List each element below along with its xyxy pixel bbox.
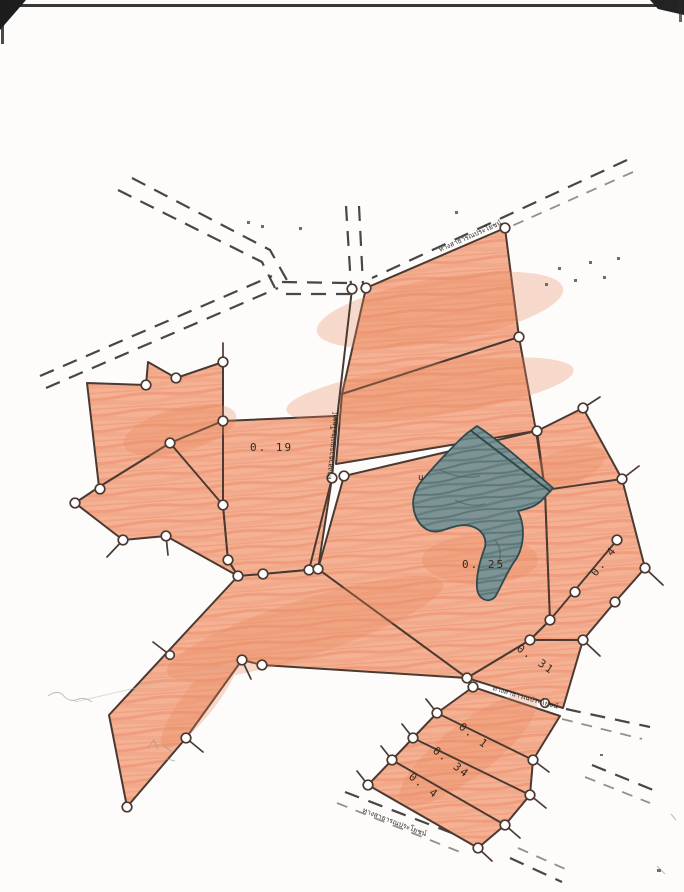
parcel-0-19 xyxy=(223,416,336,576)
scanned-map-page: 0. 19 0. 25 0. 31 0. 4 0. 1 0. 34 0. 4 ท… xyxy=(0,0,684,892)
parcel-label-0-19: 0. 19 xyxy=(250,441,293,454)
parcel-label-0-25: 0. 25 xyxy=(462,558,505,571)
scan-edge-artifacts xyxy=(0,0,684,44)
annotation-mark: u xyxy=(418,473,423,483)
map-canvas: 0. 19 0. 25 0. 31 0. 4 0. 1 0. 34 0. 4 ท… xyxy=(0,0,684,892)
